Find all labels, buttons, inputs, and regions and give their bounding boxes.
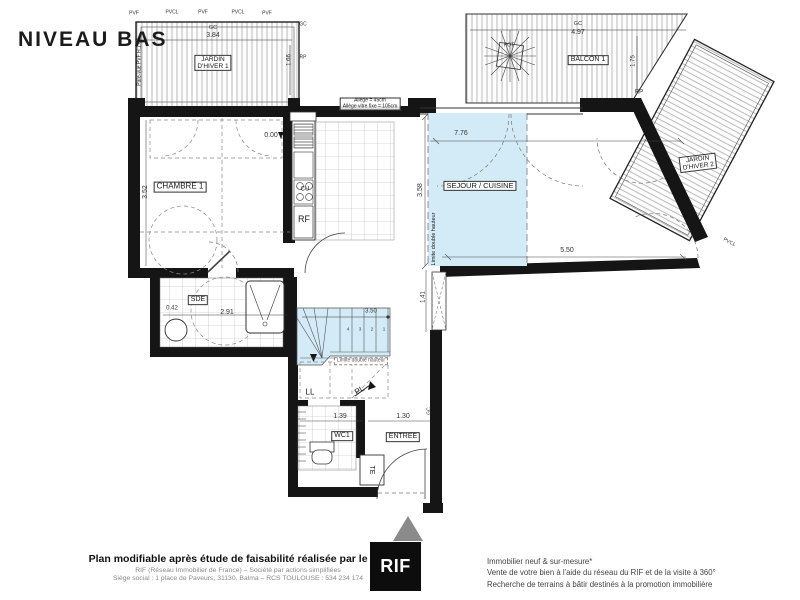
plant-icon: [484, 30, 536, 82]
annotation-pot: POT: [504, 43, 514, 49]
room-label-jardin-dhiver-1: JARDIN D'HIVER 1: [194, 55, 231, 71]
rif-logo: RIF: [370, 542, 421, 591]
dim-1-39: 1.39: [333, 413, 347, 421]
dim-gc-entree: GC: [427, 407, 433, 415]
dim-1-75: 1.75: [631, 55, 638, 67]
page-title: NIVEAU BAS: [18, 28, 168, 52]
dim-3-50: 3.50: [365, 309, 377, 316]
stair-step-2: 2: [371, 328, 374, 333]
room-label-sejour-cuisine: SEJOUR / CUISINE: [443, 181, 516, 191]
dim-7-76: 7.76: [454, 130, 468, 138]
tick-pvcl-2: PVCL: [231, 10, 244, 16]
rif-logo-text: RIF: [380, 556, 411, 577]
footer-services: Immobilier neuf & sur-mesure* Vente de v…: [487, 556, 787, 590]
footer-bold-line: Plan modifiable après étude de faisabili…: [58, 553, 418, 565]
dim-3-58: 3.58: [417, 183, 425, 197]
dim-gc-jd1-top: GC: [209, 25, 217, 31]
annotation-level-0: 0.00: [264, 132, 278, 140]
annotation-limite-double-hauteur-vertical: Limite double hauteur: [431, 213, 437, 266]
entrance-arrow: [393, 516, 423, 541]
tick-pvcl-1: PVCL: [165, 10, 178, 16]
room-label-balcon-1: BALCON 1: [568, 55, 609, 65]
room-label-entree: ENTREE: [386, 432, 420, 442]
room-label-chambre-1: CHAMBRE 1: [154, 182, 207, 193]
kitchen-fixtures: [278, 112, 394, 240]
dim-gc-balcon: GC: [574, 21, 582, 27]
tick-pvf-3: PVF: [262, 11, 272, 17]
tick-pvf-2: PVF: [198, 10, 208, 16]
dim-1-66: 1.66: [287, 54, 294, 66]
dim-1-30: 1.30: [396, 413, 410, 421]
bedroom-furniture: [140, 118, 290, 274]
dim-2-91: 2.91: [220, 309, 234, 317]
footer-service-line-1: Immobilier neuf & sur-mesure*: [487, 556, 787, 567]
annotation-rf: RF: [298, 215, 310, 225]
floorplan-drawing: [0, 0, 800, 600]
annotation-limite-double-hauteur: Limite double hauteur: [334, 357, 388, 365]
dim-3-52: 3.52: [142, 185, 150, 199]
footer-disclaimer: Plan modifiable après étude de faisabili…: [58, 553, 418, 584]
annotation-pare-vue: Pare-vue PVF H:1.80: [137, 38, 143, 86]
footer-service-line-3: Recherche de terrains à bâtir destinés à…: [487, 579, 787, 590]
footer-address-line: Siège social : 1 place de Paveurs, 31130…: [58, 575, 418, 583]
dim-1-41: 1.41: [421, 291, 428, 303]
stair-step-3: 3: [359, 328, 362, 333]
dim-0-42: 0.42: [166, 306, 178, 313]
dim-gc-jd1-right: GC: [299, 22, 307, 28]
stair-step-4: 4: [347, 328, 350, 333]
annotation-te: TE: [367, 466, 375, 475]
annotation-cu: CU: [301, 187, 310, 194]
room-label-sde: SDE: [188, 295, 208, 305]
floorplan-page: NIVEAU BAS JARDIN D'HIVER 1BALCON 1JARDI…: [0, 0, 800, 600]
dim-4-97: 4.97: [571, 29, 585, 37]
footer-service-line-2: Vente de votre bien à l'aide du réseau d…: [487, 567, 787, 578]
dim-rp-jd1: RP: [300, 55, 307, 61]
tick-pvf-1: PVF: [129, 11, 139, 17]
footer-company-line: RIF (Réseau Immobilier de France) – Soci…: [58, 567, 418, 575]
dim-3-84: 3.84: [206, 32, 220, 40]
room-label-wc1: WC1: [331, 431, 353, 441]
annotation-ll: LL: [306, 389, 315, 398]
stair-step-1: 1: [383, 328, 386, 333]
dim-5-50: 5.50: [560, 247, 574, 255]
annotation-allege: Allège = 45cm Allège vitre fixe = 105cm: [340, 98, 401, 111]
dim-rp-balcon: RP: [635, 90, 643, 97]
